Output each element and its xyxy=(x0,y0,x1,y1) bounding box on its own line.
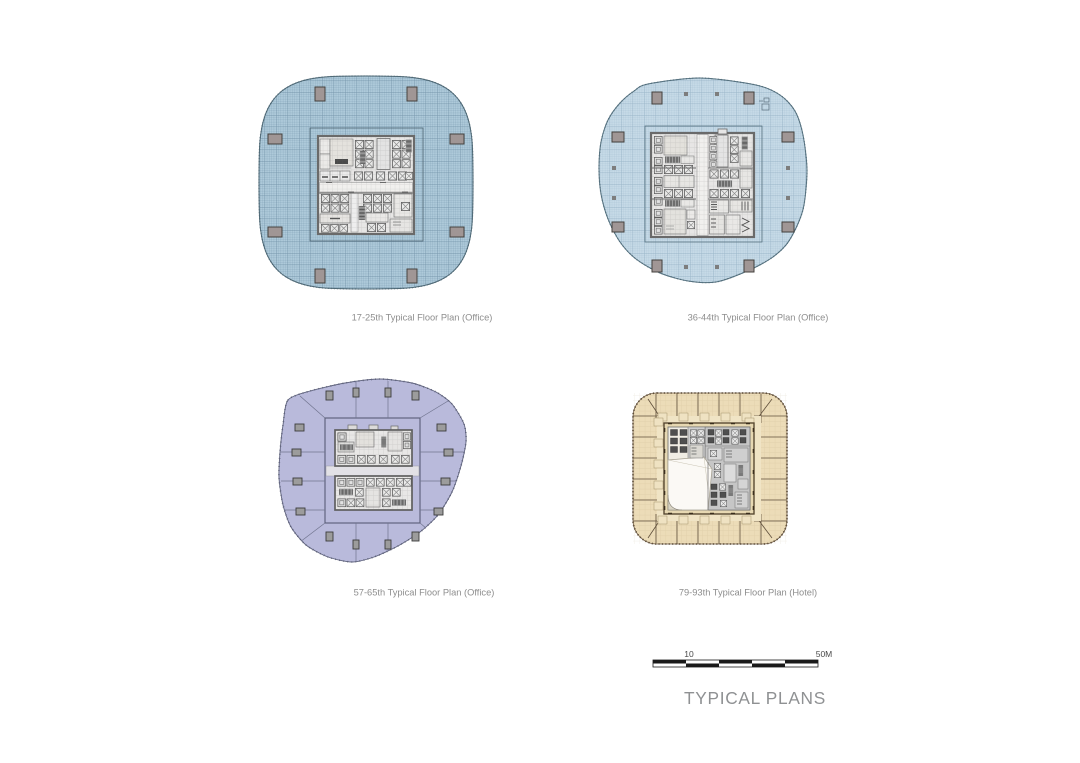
svg-text:79-93th Typical Floor Plan (Ho: 79-93th Typical Floor Plan (Hotel) xyxy=(679,588,817,598)
svg-text:17-25th Typical Floor Plan (Of: 17-25th Typical Floor Plan (Office) xyxy=(352,313,493,323)
svg-text:TYPICAL PLANS: TYPICAL PLANS xyxy=(684,688,826,708)
svg-text:50M: 50M xyxy=(816,649,833,659)
svg-text:10: 10 xyxy=(684,649,694,659)
svg-text:57-65th Typical Floor Plan (Of: 57-65th Typical Floor Plan (Office) xyxy=(354,588,495,598)
svg-text:36-44th Typical Floor Plan (Of: 36-44th Typical Floor Plan (Office) xyxy=(688,313,829,323)
